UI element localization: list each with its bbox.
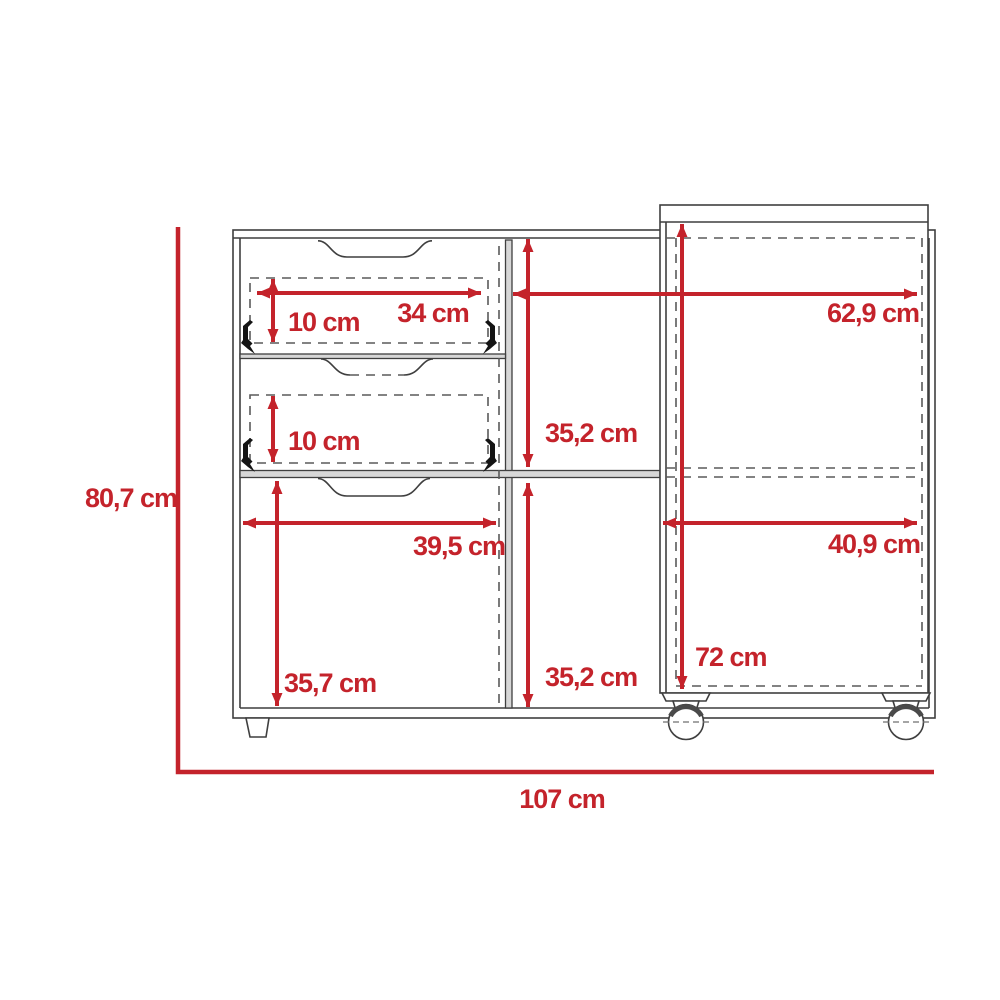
- caster-plate: [882, 693, 930, 701]
- label-cart-height: 72 cm: [695, 642, 767, 672]
- label-total-width: 107 cm: [519, 784, 605, 814]
- label-drawer-top-height: 10 cm: [288, 307, 360, 337]
- cabinet-foot: [246, 718, 269, 737]
- label-cart-top-width: 62,9 cm: [827, 298, 919, 328]
- label-shelf-lower-height: 35,2 cm: [545, 662, 637, 692]
- cart-body: [660, 205, 928, 693]
- label-door-width: 39,5 cm: [413, 531, 505, 561]
- drawer-divider-upper: [240, 354, 506, 359]
- label-door-height: 35,7 cm: [284, 668, 376, 698]
- label-shelf-upper-height: 35,2 cm: [545, 418, 637, 448]
- rolling-cart: [660, 205, 928, 693]
- label-total-height: 80,7 cm: [85, 483, 177, 513]
- label-cart-lower-width: 40,9 cm: [828, 529, 920, 559]
- label-drawer-top-width: 34 cm: [397, 298, 469, 328]
- label-drawer-mid-height: 10 cm: [288, 426, 360, 456]
- diagram-canvas: 80,7 cm 107 cm 34 cm 10 cm 10 cm 62,9 cm…: [0, 0, 1000, 1000]
- caster-wheel-right: [882, 693, 930, 740]
- caster-plate: [662, 693, 710, 701]
- caster-wheel-left: [662, 693, 710, 740]
- dimension-diagram: 80,7 cm 107 cm 34 cm 10 cm 10 cm 62,9 cm…: [0, 0, 1000, 1000]
- shelf-divider: [240, 471, 660, 478]
